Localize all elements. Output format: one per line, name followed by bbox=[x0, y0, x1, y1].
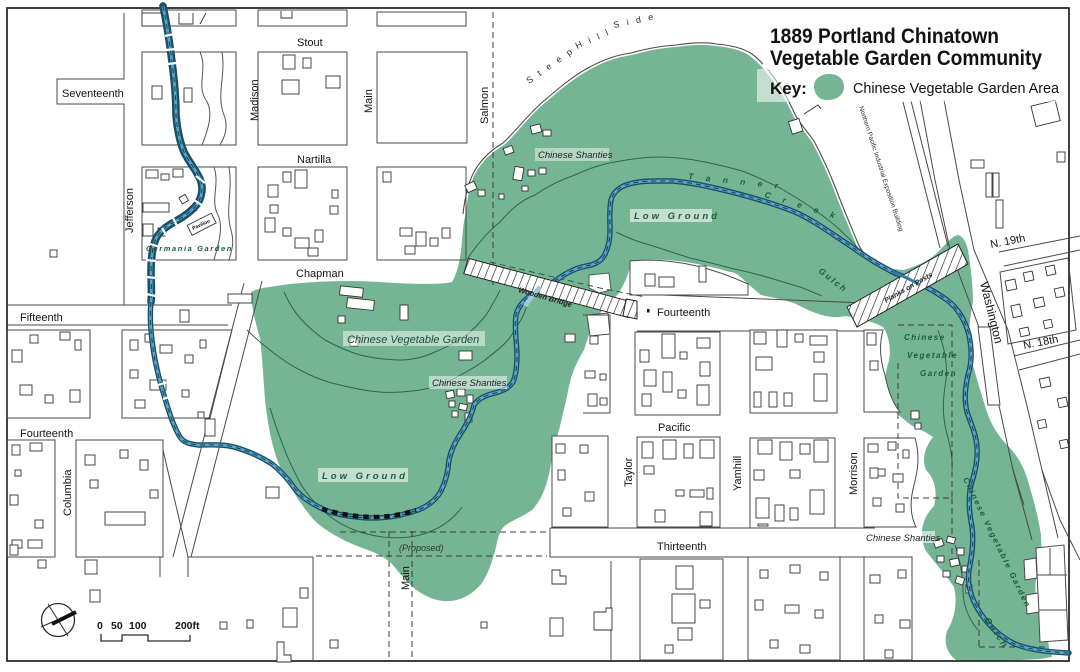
svg-text:Vegetable: Vegetable bbox=[907, 351, 958, 360]
svg-text:Chinese Vegetable Garden: Chinese Vegetable Garden bbox=[347, 334, 479, 346]
svg-text:Madison: Madison bbox=[249, 79, 261, 121]
svg-text:Chapman: Chapman bbox=[296, 268, 344, 280]
svg-text:Morrison: Morrison bbox=[848, 452, 860, 495]
svg-text:Chinese Shanties: Chinese Shanties bbox=[538, 150, 613, 161]
svg-text:100: 100 bbox=[129, 620, 147, 632]
svg-text:Fourteenth: Fourteenth bbox=[657, 307, 710, 319]
svg-text:Fifteenth: Fifteenth bbox=[20, 312, 63, 324]
svg-text:0: 0 bbox=[97, 620, 103, 632]
svg-text:Thirteenth: Thirteenth bbox=[657, 541, 707, 553]
svg-text:Chinese: Chinese bbox=[904, 333, 946, 342]
svg-text:Salmon: Salmon bbox=[479, 87, 491, 124]
svg-text:Low Ground: Low Ground bbox=[322, 471, 408, 482]
svg-text:200ft: 200ft bbox=[175, 620, 200, 632]
svg-text:Nartilla: Nartilla bbox=[297, 154, 332, 166]
svg-text:Main: Main bbox=[363, 89, 375, 113]
svg-text:Taylor: Taylor bbox=[623, 457, 635, 487]
svg-text:Chinese Vegetable Garden Area: Chinese Vegetable Garden Area bbox=[853, 81, 1060, 97]
svg-text:Chinese Shanties: Chinese Shanties bbox=[432, 378, 507, 389]
svg-text:Chinese Shanties: Chinese Shanties bbox=[866, 533, 941, 544]
svg-text:(Proposed): (Proposed) bbox=[399, 543, 444, 553]
svg-text:Pacific: Pacific bbox=[658, 422, 691, 434]
svg-text:1889 Portland Chinatown: 1889 Portland Chinatown bbox=[770, 25, 999, 48]
svg-text:Seventeenth: Seventeenth bbox=[62, 88, 124, 100]
svg-text:Vegetable Garden Community: Vegetable Garden Community bbox=[770, 47, 1042, 70]
svg-text:Garden: Garden bbox=[920, 369, 957, 378]
svg-text:Germania Garden: Germania Garden bbox=[146, 244, 233, 253]
svg-text:Stout: Stout bbox=[297, 37, 323, 49]
svg-text:Key:: Key: bbox=[770, 79, 807, 98]
svg-text:Main: Main bbox=[400, 566, 412, 590]
svg-text:Jefferson: Jefferson bbox=[124, 188, 136, 233]
svg-text:Yamhill: Yamhill bbox=[732, 456, 744, 491]
svg-text:Fourteenth: Fourteenth bbox=[20, 428, 73, 440]
svg-text:Columbia: Columbia bbox=[62, 469, 74, 516]
svg-text:Low Ground: Low Ground bbox=[634, 211, 720, 222]
svg-text:50: 50 bbox=[111, 620, 123, 632]
